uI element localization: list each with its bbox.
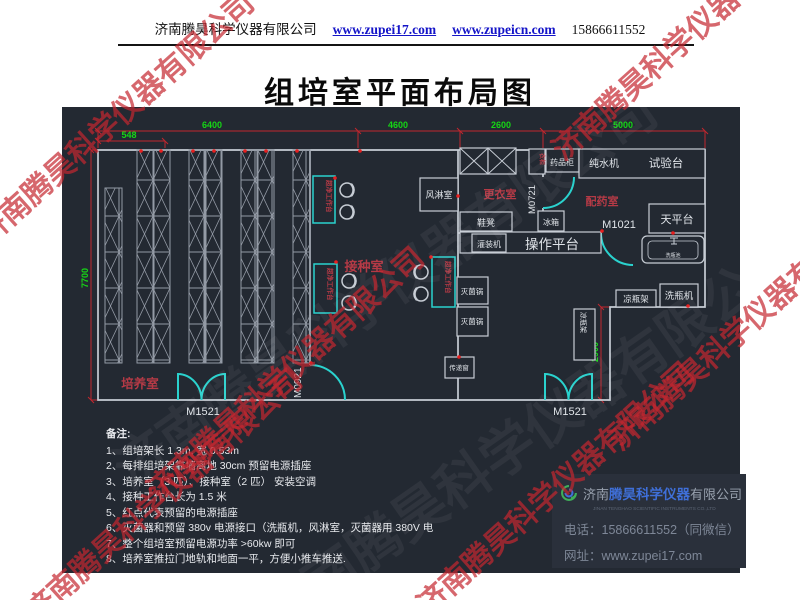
bottle-rack-label: 凉瓶架 <box>623 294 649 304</box>
door-m1521-left <box>178 374 225 400</box>
pure-water-label: 纯水机 <box>589 157 619 170</box>
air-shower-label: 风淋室 <box>425 189 452 200</box>
rack-column <box>137 150 153 363</box>
rack-column <box>258 150 274 363</box>
clean-bench-label-3: 超净工作台 <box>444 260 453 294</box>
locker-cabinets <box>460 148 516 174</box>
bottle-rack-vertical-label: 凉瓶架 <box>579 312 588 333</box>
rack-column <box>206 150 222 363</box>
footer-logo-block: 济南腾昊科学仪器有限公司 JINAN TENGHAO SCIENTIFIC IN… <box>552 474 746 568</box>
header-divider <box>118 44 694 46</box>
rack-column <box>105 188 122 363</box>
page-title: 组培室平面布局图 <box>0 68 800 112</box>
footer-company-en: JINAN TENGHAO SCIENTIFIC INSTRUMENTS CO.… <box>593 507 742 512</box>
notes-block: 备注: 1、组培架长 1.3m, 宽 0.53m 2、每排组培架靠墙离地 30c… <box>106 427 433 568</box>
culture-racks <box>105 150 310 363</box>
rack-column <box>154 150 170 363</box>
note-line: 7、整个组培室预留电源功率 >60kw 即可 <box>106 537 433 553</box>
note-line: 5、红点代表预留的电源插座 <box>106 506 433 522</box>
page: 济南腾昊科学仪器有限公司 www.zupei17.com www.zupeicn… <box>0 0 800 600</box>
room-label-dispensing: 配药室 <box>586 194 619 208</box>
wardrobe-label: 衣柜 <box>538 153 546 165</box>
floor-plan: 548 6400 4600 2600 5000 7700 2900 <box>75 117 725 437</box>
balance-table-label: 天平台 <box>661 212 694 226</box>
rack-column <box>189 150 205 363</box>
door-label-m1521-left: M1521 <box>186 406 220 418</box>
pass-window-label: 传递窗 <box>449 363 469 372</box>
door-label-m0921: M0921 <box>293 367 304 398</box>
door-dispensing <box>601 233 633 265</box>
note-line: 4、接种工作台长为 1.5 米 <box>106 490 433 506</box>
footer-company-suf: 有限公司 <box>690 487 742 502</box>
notes-heading: 备注: <box>106 427 433 443</box>
cad-panel: 548 6400 4600 2600 5000 7700 2900 <box>62 107 740 573</box>
dim-7700: 7700 <box>80 268 90 288</box>
company-logo-icon <box>560 480 578 506</box>
footer-company-pre: 济南 <box>583 487 609 502</box>
sterilizer-label-2: 灭菌锅 <box>461 316 484 326</box>
note-line: 1、组培架长 1.3m, 宽 0.53m <box>106 444 433 460</box>
note-line: 6、灭菌器和预留 380v 电源接口（洗瓶机，风淋室，灭菌器用 380V 电 <box>106 521 433 537</box>
door-m1521-right <box>545 374 592 400</box>
footer-company-name: 济南腾昊科学仪器有限公司 <box>583 483 742 503</box>
footer-phone: 电话：15866611552（同微信） <box>564 519 742 538</box>
equipment <box>420 149 705 378</box>
dim-5000: 5000 <box>613 120 633 130</box>
note-line: 3、培养室（3 匹）、接种室（2 匹） 安装空调 <box>106 475 433 491</box>
operation-platform-label: 操作平台 <box>525 237 579 252</box>
clean-bench-label-1: 超净工作台 <box>325 179 334 213</box>
footer-company-mid: 腾昊科学仪器 <box>609 487 690 502</box>
dim-6400: 6400 <box>202 120 222 130</box>
bottle-washer-label: 洗瓶机 <box>665 290 694 302</box>
bottle-sink-label: 洗瓶池 <box>665 252 680 259</box>
door-m0921 <box>310 365 345 400</box>
note-line: 2、每排组培架靠墙离地 30cm 预留电源插座 <box>106 459 433 475</box>
note-line: 8、培养室推拉门地轨和地面一平，方便小推车推送. <box>106 552 433 568</box>
door-label-m1521-right: M1521 <box>553 406 587 418</box>
header-phone: 15866611552 <box>572 22 646 38</box>
room-label-culture: 培养室 <box>121 376 159 391</box>
footer-website: 网址：www.zupei17.com <box>564 545 742 564</box>
door-label-m1021: M1021 <box>602 219 636 231</box>
medicine-cabinet-label: 药品柜 <box>550 157 574 167</box>
header-company: 济南腾昊科学仪器有限公司 <box>155 18 317 38</box>
dim-548: 548 <box>121 130 136 140</box>
rack-column <box>293 150 310 363</box>
dim-2600: 2600 <box>491 120 511 130</box>
room-label-inoculation: 接种室 <box>344 259 383 274</box>
sterilizer-label-1: 灭菌锅 <box>461 286 484 296</box>
clean-bench-label-2: 超净工作台 <box>326 267 335 301</box>
rack-column <box>241 150 257 363</box>
room-label-changing: 更衣室 <box>484 187 517 201</box>
door-label-m0721: M0721 <box>527 185 538 214</box>
header-link-2[interactable]: www.zupeicn.com <box>452 22 556 38</box>
header: 济南腾昊科学仪器有限公司 www.zupei17.com www.zupeicn… <box>0 18 800 38</box>
shoe-bench-label: 鞋凳 <box>477 217 495 228</box>
fridge-label: 冰箱 <box>543 217 559 227</box>
stools <box>340 183 428 310</box>
test-bench-label: 试验台 <box>649 156 684 170</box>
filling-machine-label: 灌装机 <box>477 239 501 249</box>
door-m0721 <box>543 177 574 208</box>
dim-4600: 4600 <box>388 120 408 130</box>
header-link-1[interactable]: www.zupei17.com <box>333 22 437 38</box>
